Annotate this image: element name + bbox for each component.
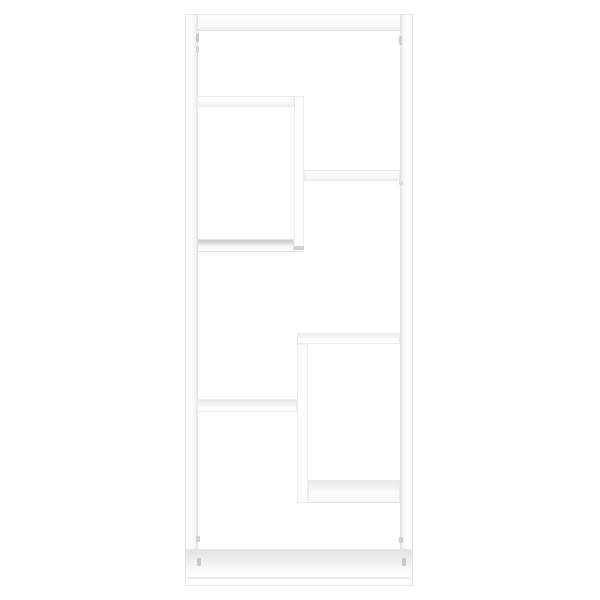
lower-left-shelf bbox=[197, 399, 297, 412]
cam-hole-left-bottom-1 bbox=[196, 536, 200, 542]
mid-left-shelf bbox=[197, 239, 294, 252]
upper-right-shelf bbox=[304, 170, 400, 181]
top-left-shelf bbox=[197, 96, 294, 107]
frame-top-rail bbox=[185, 14, 413, 31]
joint-shadow-upper-right bbox=[399, 181, 403, 185]
bottom-front-edge-line bbox=[187, 577, 411, 579]
wall-shelf bbox=[0, 0, 600, 600]
cam-hole-left-top-2 bbox=[196, 46, 199, 53]
lower-divider bbox=[297, 344, 308, 503]
mid-right-shelf bbox=[297, 333, 400, 344]
cam-hole-right-bottom-2 bbox=[402, 558, 406, 566]
cam-hole-left-top-1 bbox=[196, 33, 199, 42]
cam-hole-left-bottom-2 bbox=[197, 558, 201, 566]
lower-right-shelf bbox=[308, 480, 400, 503]
frame-bottom-rail bbox=[185, 549, 413, 586]
cam-hole-right-top bbox=[399, 36, 402, 45]
cam-hole-right-bottom-1 bbox=[399, 537, 403, 543]
upper-divider bbox=[294, 96, 304, 252]
frame-right-panel bbox=[400, 14, 413, 586]
product-photo-background bbox=[0, 0, 600, 600]
divider-foot-shadow bbox=[294, 246, 304, 250]
